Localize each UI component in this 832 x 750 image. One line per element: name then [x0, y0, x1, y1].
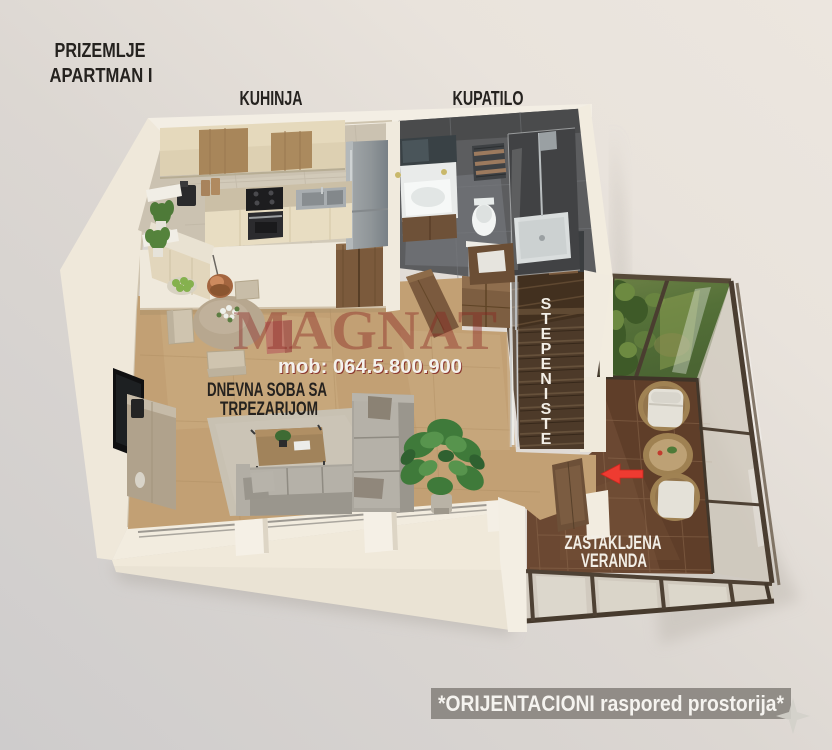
- svg-text:MAGNAT: MAGNAT: [233, 300, 497, 362]
- svg-text:KUHINJA: KUHINJA: [240, 88, 303, 110]
- svg-text:DNEVNA SOBA SA: DNEVNA SOBA SA: [207, 380, 327, 401]
- svg-text:VERANDA: VERANDA: [581, 551, 647, 572]
- svg-text:APARTMAN I: APARTMAN I: [50, 65, 153, 87]
- svg-text:mob: 064.5.800.900: mob: 064.5.800.900: [278, 356, 462, 378]
- svg-text:KUPATILO: KUPATILO: [453, 88, 524, 110]
- svg-text:PRIZEMLJE: PRIZEMLJE: [55, 40, 146, 62]
- svg-text:E: E: [541, 431, 552, 448]
- svg-text:*ORIJENTACIONI raspored prosto: *ORIJENTACIONI raspored prostorija*: [438, 691, 784, 716]
- svg-text:TRPEZARIJOM: TRPEZARIJOM: [220, 399, 318, 420]
